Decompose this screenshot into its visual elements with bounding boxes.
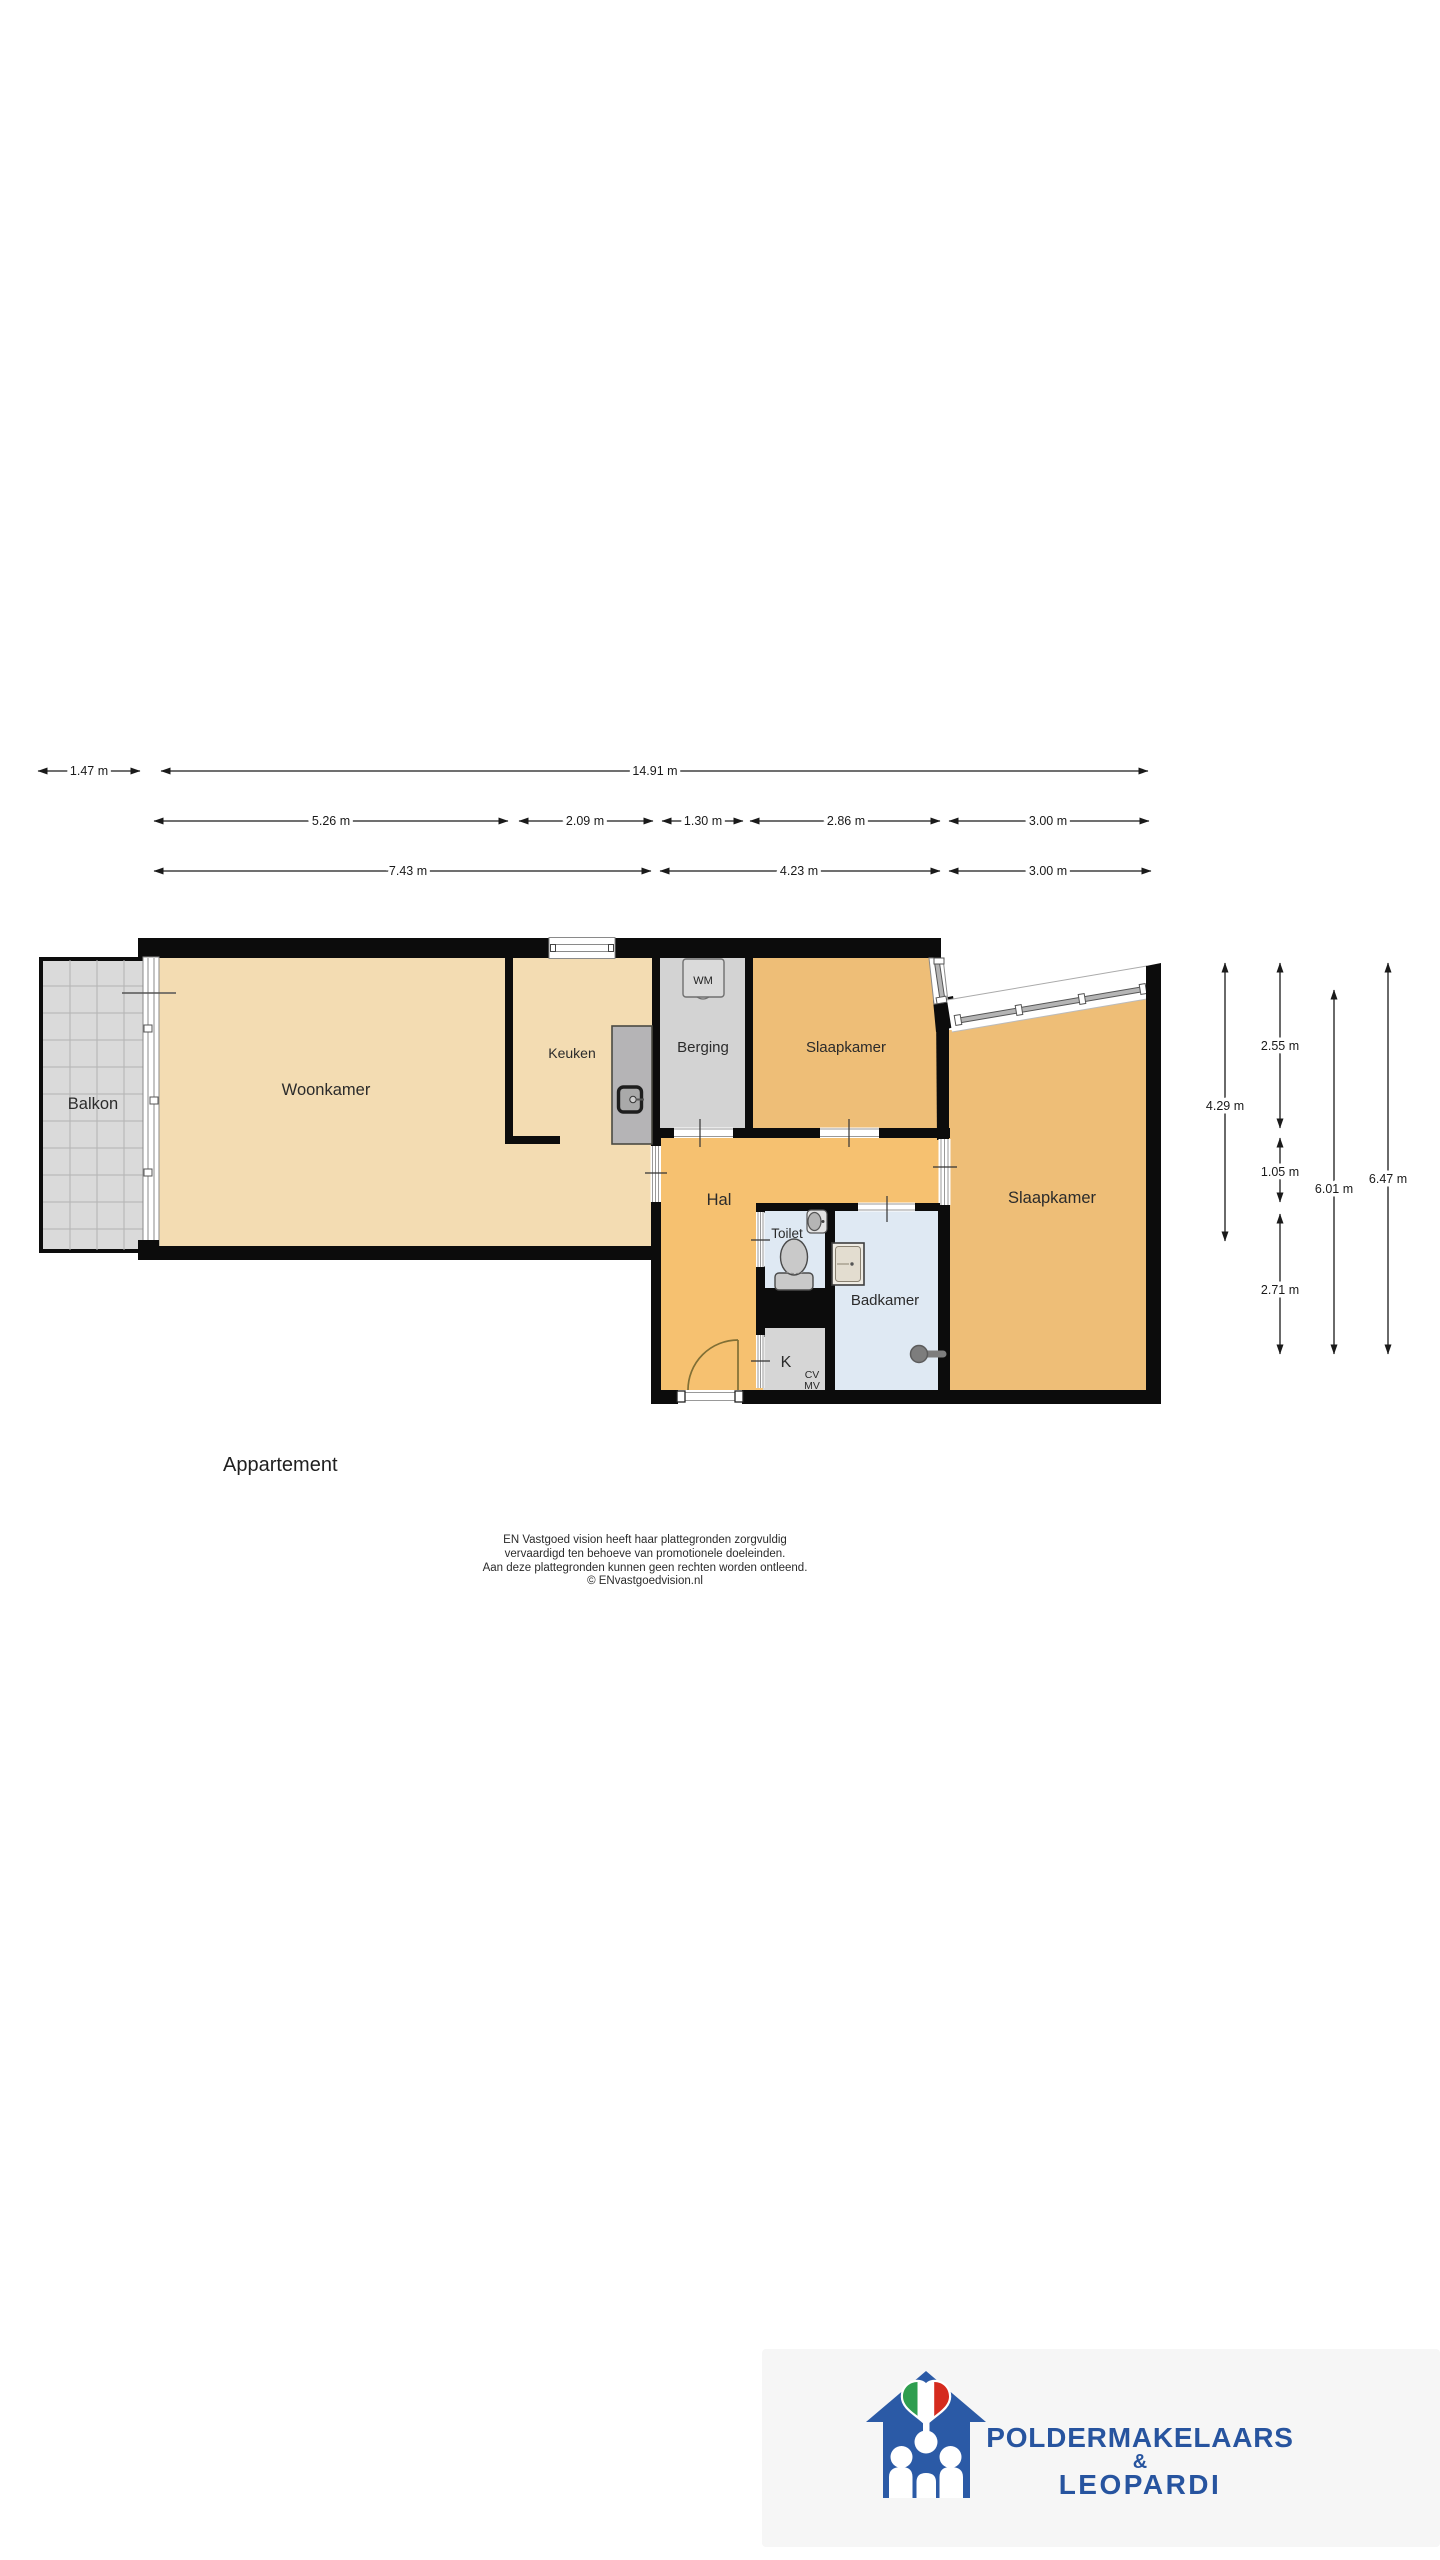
svg-text:3.00 m: 3.00 m [1029, 814, 1067, 828]
svg-text:6.01 m: 6.01 m [1315, 1182, 1353, 1196]
svg-text:MV: MV [804, 1380, 820, 1392]
svg-text:5.26 m: 5.26 m [312, 814, 350, 828]
svg-text:14.91 m: 14.91 m [632, 764, 677, 778]
svg-text:Hal: Hal [707, 1191, 732, 1209]
svg-text:© ENvastgoedvision.nl: © ENvastgoedvision.nl [587, 1575, 703, 1587]
svg-text:Badkamer: Badkamer [851, 1292, 919, 1309]
svg-text:1.30 m: 1.30 m [684, 814, 722, 828]
svg-text:Toilet: Toilet [771, 1226, 803, 1241]
svg-text:2.71 m: 2.71 m [1261, 1283, 1299, 1297]
svg-text:1.47 m: 1.47 m [70, 764, 108, 778]
svg-text:Balkon: Balkon [68, 1095, 118, 1113]
svg-text:K: K [781, 1354, 792, 1371]
svg-text:Woonkamer: Woonkamer [282, 1081, 371, 1099]
svg-text:POLDERMAKELAARS: POLDERMAKELAARS [986, 2422, 1294, 2453]
svg-text:Aan deze plattegronden kunnen: Aan deze plattegronden kunnen geen recht… [483, 1562, 808, 1574]
svg-text:Berging: Berging [677, 1039, 729, 1056]
svg-text:WM: WM [693, 975, 713, 987]
svg-text:6.47 m: 6.47 m [1369, 1172, 1407, 1186]
svg-text:1.05 m: 1.05 m [1261, 1165, 1299, 1179]
svg-text:vervaardigd ten behoeve van pr: vervaardigd ten behoeve van promotionele… [505, 1548, 786, 1560]
svg-text:Slaapkamer: Slaapkamer [806, 1039, 886, 1056]
svg-text:7.43 m: 7.43 m [389, 864, 427, 878]
svg-text:3.00 m: 3.00 m [1029, 864, 1067, 878]
svg-text:LEOPARDI: LEOPARDI [1059, 2469, 1222, 2500]
svg-text:2.55 m: 2.55 m [1261, 1039, 1299, 1053]
svg-text:4.29 m: 4.29 m [1206, 1099, 1244, 1113]
svg-text:Appartement: Appartement [223, 1454, 338, 1476]
svg-text:EN Vastgoed vision heeft haar: EN Vastgoed vision heeft haar plattegron… [503, 1534, 787, 1546]
svg-text:Keuken: Keuken [548, 1045, 595, 1061]
svg-text:4.23 m: 4.23 m [780, 864, 818, 878]
svg-text:2.09 m: 2.09 m [566, 814, 604, 828]
svg-text:Slaapkamer: Slaapkamer [1008, 1189, 1097, 1207]
svg-text:2.86 m: 2.86 m [827, 814, 865, 828]
